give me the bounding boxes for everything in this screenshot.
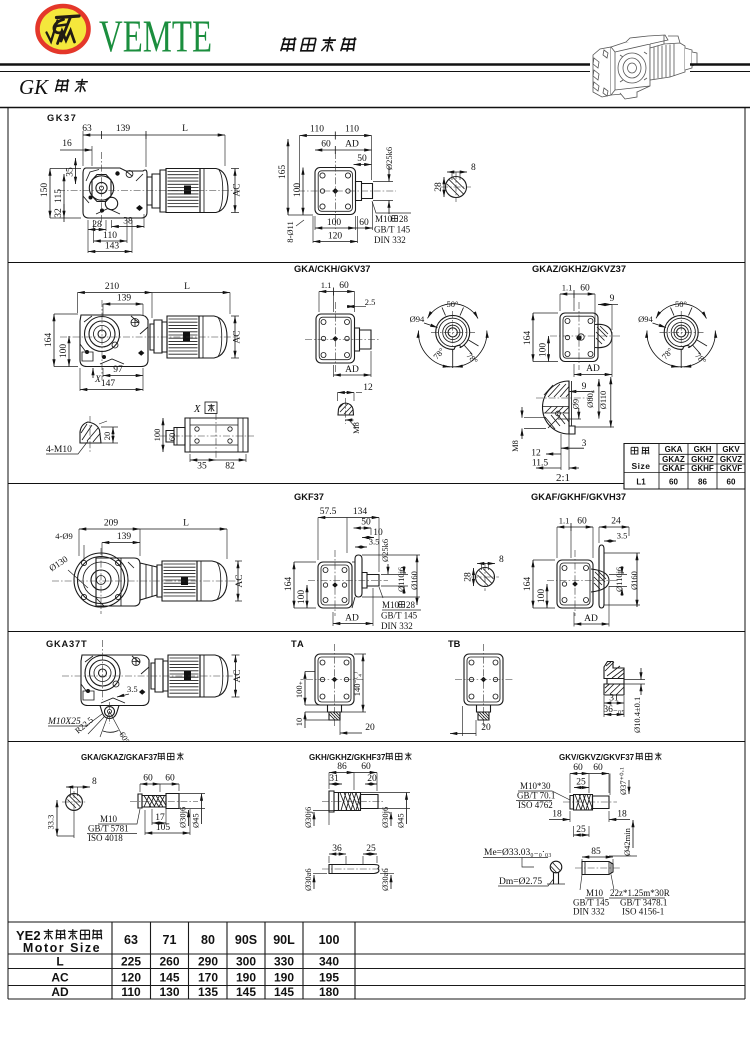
svg-text:Ø80₆: Ø80₆ xyxy=(585,390,595,408)
svg-text:100: 100 xyxy=(152,429,162,442)
svg-text:63: 63 xyxy=(124,933,138,947)
svg-text:20: 20 xyxy=(102,432,112,441)
svg-text:1.1: 1.1 xyxy=(321,280,332,290)
svg-text:35: 35 xyxy=(66,167,76,177)
svg-text:GKH: GKH xyxy=(694,445,712,454)
svg-text:GK37: GK37 xyxy=(47,113,77,123)
svg-text:60: 60 xyxy=(593,763,603,773)
svg-text:L: L xyxy=(183,519,189,529)
svg-text:3.5: 3.5 xyxy=(617,531,628,541)
svg-text:GKA: GKA xyxy=(665,445,683,454)
svg-text:28: 28 xyxy=(399,214,409,224)
svg-text:100: 100 xyxy=(319,933,340,947)
svg-text:100: 100 xyxy=(327,218,342,228)
svg-text:4-Ø9: 4-Ø9 xyxy=(55,531,72,541)
svg-text:Dm=Ø2.75: Dm=Ø2.75 xyxy=(499,877,542,887)
svg-text:L: L xyxy=(182,124,188,134)
svg-text:Ø160: Ø160 xyxy=(409,571,419,590)
svg-text:195: 195 xyxy=(319,971,339,985)
svg-text:GKHF: GKHF xyxy=(691,464,714,473)
svg-text:Ø110j6: Ø110j6 xyxy=(614,567,624,592)
svg-text:25: 25 xyxy=(576,825,586,835)
svg-text:M10: M10 xyxy=(375,214,393,224)
svg-text:260: 260 xyxy=(159,955,179,969)
svg-text:AD: AD xyxy=(345,140,359,150)
svg-text:M10*30: M10*30 xyxy=(520,781,551,791)
svg-text:2.5: 2.5 xyxy=(365,297,376,307)
svg-text:28: 28 xyxy=(434,182,444,192)
svg-text:60: 60 xyxy=(577,517,587,527)
svg-text:ISO 4762: ISO 4762 xyxy=(518,800,553,810)
svg-text:Ø94: Ø94 xyxy=(410,314,425,324)
svg-text:145: 145 xyxy=(236,985,256,999)
svg-text:AD: AD xyxy=(586,364,600,374)
svg-text:139: 139 xyxy=(117,532,132,542)
svg-text:12: 12 xyxy=(363,383,373,393)
svg-text:GKA/CKH/GKV37: GKA/CKH/GKV37 xyxy=(294,264,370,274)
svg-text:210: 210 xyxy=(105,282,120,292)
svg-text:164: 164 xyxy=(523,577,533,592)
svg-text:50°: 50° xyxy=(675,299,687,309)
svg-text:135: 135 xyxy=(198,985,218,999)
svg-text:GB/T 145: GB/T 145 xyxy=(381,611,418,621)
svg-text:L: L xyxy=(56,955,63,969)
svg-text:M10: M10 xyxy=(586,888,604,898)
svg-text:8: 8 xyxy=(499,555,504,565)
svg-text:Ø45: Ø45 xyxy=(191,813,201,828)
svg-text:24: 24 xyxy=(611,517,621,527)
svg-text:145: 145 xyxy=(159,971,179,985)
svg-text:Ø110: Ø110 xyxy=(598,391,608,410)
svg-text:86: 86 xyxy=(698,478,707,487)
svg-text:M8: M8 xyxy=(510,440,520,452)
svg-text:DIN 332: DIN 332 xyxy=(573,907,605,917)
svg-text:Ø160: Ø160 xyxy=(629,571,639,590)
svg-text:AD: AD xyxy=(51,985,69,999)
svg-text:TB: TB xyxy=(448,639,461,649)
svg-text:Ø30a6: Ø30a6 xyxy=(303,868,313,891)
svg-text:GB/T 70.1: GB/T 70.1 xyxy=(517,791,555,801)
svg-text:100: 100 xyxy=(537,589,547,604)
svg-text:150: 150 xyxy=(40,183,50,198)
svg-text:50°: 50° xyxy=(447,299,459,309)
svg-text:300: 300 xyxy=(236,955,256,969)
svg-text:Ø30j6: Ø30j6 xyxy=(303,807,313,828)
svg-text:225: 225 xyxy=(121,955,141,969)
svg-text:Ø30j6: Ø30j6 xyxy=(178,807,188,828)
svg-text:85: 85 xyxy=(591,847,601,857)
svg-text:139: 139 xyxy=(117,294,132,304)
svg-text:110: 110 xyxy=(345,125,359,135)
svg-text:20: 20 xyxy=(365,723,375,733)
svg-text:31: 31 xyxy=(329,774,339,784)
svg-text:63: 63 xyxy=(82,124,92,134)
svg-text:50: 50 xyxy=(361,518,371,528)
svg-text:100₊₁: 100₊₁ xyxy=(294,678,304,698)
svg-text:97: 97 xyxy=(113,365,123,375)
svg-text:Motor Size: Motor Size xyxy=(23,941,101,955)
svg-text:100: 100 xyxy=(59,344,69,359)
svg-text:18: 18 xyxy=(617,810,627,820)
svg-text:145: 145 xyxy=(274,985,294,999)
svg-text:16: 16 xyxy=(62,139,72,149)
svg-text:GKV/GKVZ/GKVF37: GKV/GKVZ/GKVF37 xyxy=(559,753,635,762)
svg-text:AC: AC xyxy=(233,669,243,682)
svg-text:80: 80 xyxy=(201,933,215,947)
svg-text:GKAZ/GKHZ/GKVZ37: GKAZ/GKHZ/GKVZ37 xyxy=(532,264,626,274)
svg-text:L: L xyxy=(184,282,190,292)
svg-text:36: 36 xyxy=(332,844,342,854)
svg-text:290: 290 xyxy=(198,955,218,969)
svg-text:4-M10: 4-M10 xyxy=(46,445,72,455)
svg-text:130: 130 xyxy=(159,985,179,999)
svg-text:60: 60 xyxy=(143,774,153,784)
svg-text:ISO 4156-1: ISO 4156-1 xyxy=(622,907,664,917)
svg-text:209: 209 xyxy=(104,519,119,529)
svg-text:3.5: 3.5 xyxy=(369,537,380,547)
svg-text:100: 100 xyxy=(297,590,307,605)
svg-text:190: 190 xyxy=(274,971,294,985)
svg-text:86: 86 xyxy=(337,762,347,772)
svg-text:Size: Size xyxy=(631,461,650,471)
svg-text:Ø30j6: Ø30j6 xyxy=(380,807,390,828)
svg-text:33.3: 33.3 xyxy=(46,815,56,830)
svg-text:71: 71 xyxy=(163,933,177,947)
svg-text:8: 8 xyxy=(92,777,97,787)
svg-text:X: X xyxy=(193,404,201,415)
svg-text:60: 60 xyxy=(573,763,583,773)
svg-text:AC: AC xyxy=(233,183,243,196)
svg-text:VEMTE: VEMTE xyxy=(99,11,212,62)
svg-text:GKVZ: GKVZ xyxy=(720,455,742,464)
svg-text:10: 10 xyxy=(294,718,304,727)
svg-text:Ø25k6: Ø25k6 xyxy=(380,539,390,562)
svg-text:180: 180 xyxy=(319,985,339,999)
svg-text:Ø37⁺⁰⋅¹: Ø37⁺⁰⋅¹ xyxy=(618,767,628,795)
svg-text:164: 164 xyxy=(284,577,294,592)
svg-text:115: 115 xyxy=(54,189,64,203)
svg-text:GKAF/GKHF/GKVH37: GKAF/GKHF/GKVH37 xyxy=(531,492,626,502)
svg-text:147: 147 xyxy=(101,379,116,389)
svg-text:110: 110 xyxy=(103,231,117,241)
svg-text:Ø25k6: Ø25k6 xyxy=(384,147,394,170)
svg-text:ISO 4018: ISO 4018 xyxy=(88,833,123,843)
svg-text:AD: AD xyxy=(345,365,359,375)
svg-text:105: 105 xyxy=(156,823,171,833)
svg-text:TA: TA xyxy=(291,639,305,649)
svg-text:Me=Ø33.03₀₋₀⋅₀₃: Me=Ø33.03₀₋₀⋅₀₃ xyxy=(484,848,552,858)
svg-text:AC: AC xyxy=(235,574,245,587)
svg-text:60: 60 xyxy=(167,433,177,442)
svg-text:330: 330 xyxy=(274,955,294,969)
svg-text:DIN 332: DIN 332 xyxy=(381,621,413,631)
svg-text:170: 170 xyxy=(198,971,218,985)
svg-text:100: 100 xyxy=(539,343,549,358)
svg-text:139: 139 xyxy=(116,124,131,134)
svg-text:DIN 332: DIN 332 xyxy=(374,235,406,245)
svg-text:GKA/GKAZ/GKAF37: GKA/GKAZ/GKAF37 xyxy=(81,753,158,762)
svg-text:90L: 90L xyxy=(273,933,295,947)
svg-text:2:1: 2:1 xyxy=(556,472,570,484)
svg-text:20: 20 xyxy=(367,774,377,784)
svg-text:AD: AD xyxy=(584,614,598,624)
svg-text:GKA37T: GKA37T xyxy=(46,639,87,649)
svg-text:1.1: 1.1 xyxy=(559,516,570,526)
svg-text:140⁻⁽₄⁾: 140⁻⁽₄⁾ xyxy=(352,672,362,696)
svg-text:GKVF: GKVF xyxy=(720,464,742,473)
svg-text:Ø30a6: Ø30a6 xyxy=(380,868,390,891)
svg-text:60: 60 xyxy=(359,218,369,228)
svg-text:120: 120 xyxy=(328,232,343,242)
svg-text:M10: M10 xyxy=(382,600,400,610)
svg-text:60: 60 xyxy=(727,478,736,487)
svg-text:22z*1.25m*30R: 22z*1.25m*30R xyxy=(610,888,670,898)
svg-text:12: 12 xyxy=(531,449,541,459)
svg-text:110: 110 xyxy=(121,985,141,999)
svg-text:AD: AD xyxy=(345,614,359,624)
svg-text:18: 18 xyxy=(552,810,562,820)
svg-text:11.5: 11.5 xyxy=(532,459,549,469)
svg-text:134: 134 xyxy=(353,507,368,517)
svg-text:Ø10.4±0.1: Ø10.4±0.1 xyxy=(632,697,642,733)
svg-text:60: 60 xyxy=(339,281,349,291)
svg-text:32: 32 xyxy=(54,208,64,218)
svg-text:190: 190 xyxy=(236,971,256,985)
svg-text:60: 60 xyxy=(580,284,590,294)
svg-text:35: 35 xyxy=(197,462,207,472)
svg-text:Ø9: Ø9 xyxy=(571,399,581,409)
svg-text:164: 164 xyxy=(44,333,54,348)
svg-text:17: 17 xyxy=(155,813,165,823)
svg-text:GB/T 145: GB/T 145 xyxy=(374,225,411,235)
svg-text:38: 38 xyxy=(123,217,133,227)
svg-text:164: 164 xyxy=(523,331,533,346)
svg-text:L1: L1 xyxy=(636,478,646,487)
svg-text:3.5: 3.5 xyxy=(127,684,138,694)
svg-text:110: 110 xyxy=(310,125,324,135)
svg-text:GKHZ: GKHZ xyxy=(691,455,714,464)
svg-text:GKF37: GKF37 xyxy=(294,492,324,502)
svg-text:90S: 90S xyxy=(235,933,257,947)
svg-text:25: 25 xyxy=(576,778,586,788)
svg-text:GKH/GKHZ/GKHF37: GKH/GKHZ/GKHF37 xyxy=(309,753,386,762)
svg-text:60: 60 xyxy=(361,762,371,772)
svg-text:M10: M10 xyxy=(100,814,118,824)
svg-text:60: 60 xyxy=(165,774,175,784)
svg-text:GKAF: GKAF xyxy=(662,464,685,473)
svg-text:GK: GK xyxy=(19,75,49,99)
svg-text:340: 340 xyxy=(319,955,339,969)
svg-text:AC: AC xyxy=(51,971,69,985)
svg-text:120: 120 xyxy=(121,971,141,985)
svg-text:28: 28 xyxy=(464,572,474,582)
svg-text:60: 60 xyxy=(321,140,331,150)
svg-text:36₋₀₅: 36₋₀₅ xyxy=(603,705,624,715)
svg-text:9: 9 xyxy=(610,294,615,304)
svg-text:Ø42min: Ø42min xyxy=(622,827,632,856)
svg-text:57.5: 57.5 xyxy=(320,507,337,517)
svg-text:50: 50 xyxy=(357,154,367,164)
svg-text:143: 143 xyxy=(105,242,120,252)
svg-text:28: 28 xyxy=(406,600,416,610)
svg-text:GKV: GKV xyxy=(722,445,740,454)
svg-text:Ø110j6: Ø110j6 xyxy=(396,567,406,592)
svg-text:31: 31 xyxy=(609,694,619,704)
svg-text:3: 3 xyxy=(582,439,587,449)
svg-text:8: 8 xyxy=(471,163,476,173)
svg-text:82: 82 xyxy=(225,462,235,472)
svg-text:20: 20 xyxy=(481,723,491,733)
svg-text:1.1: 1.1 xyxy=(562,283,573,293)
svg-text:165: 165 xyxy=(278,165,288,180)
svg-text:GB/T 5781: GB/T 5781 xyxy=(88,824,129,834)
svg-text:Ø45: Ø45 xyxy=(396,813,406,828)
svg-text:25: 25 xyxy=(366,844,376,854)
svg-text:Ø94: Ø94 xyxy=(638,314,653,324)
svg-text:GKAZ: GKAZ xyxy=(662,455,685,464)
svg-text:60: 60 xyxy=(669,478,678,487)
svg-text:100: 100 xyxy=(293,183,303,198)
svg-text:8-Ø11: 8-Ø11 xyxy=(285,221,295,242)
